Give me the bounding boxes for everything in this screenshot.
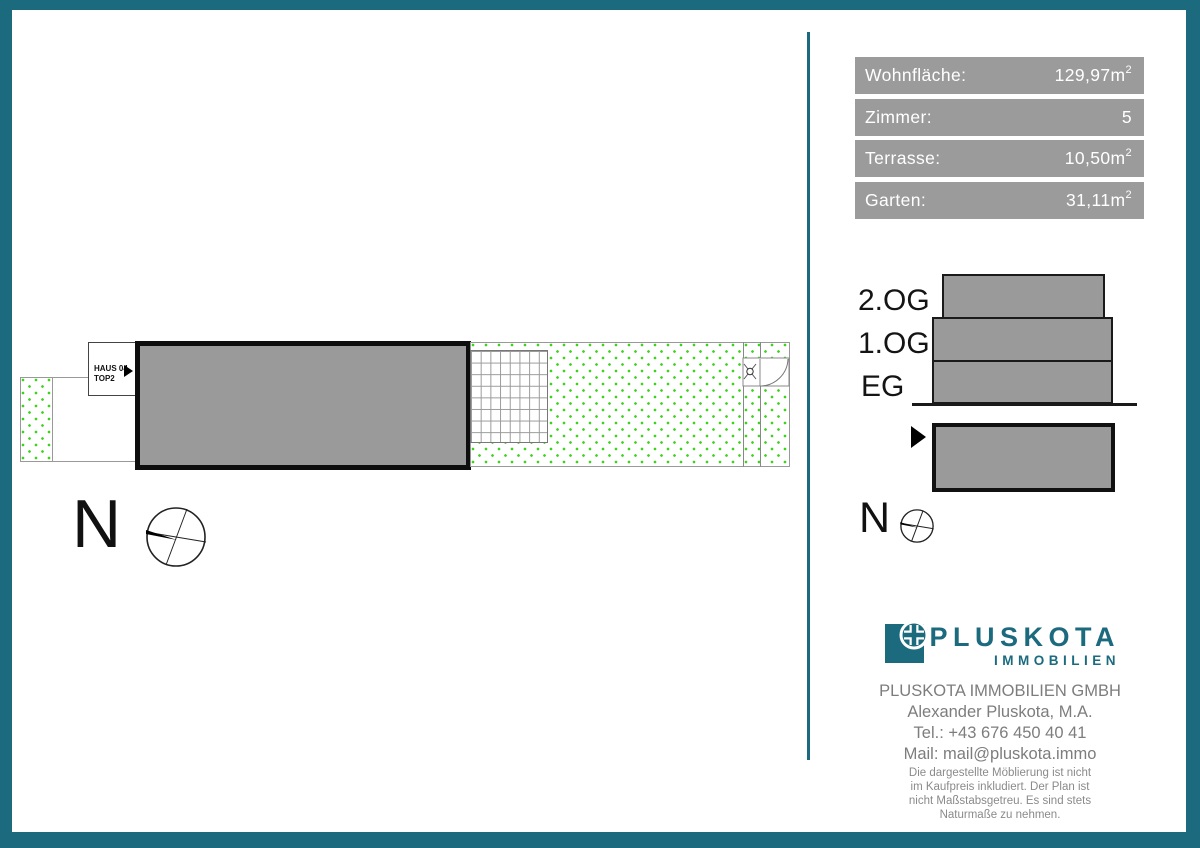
stat-value: 10,50m2 [1065, 148, 1132, 169]
frame-top [0, 0, 1200, 10]
contact-block: PLUSKOTA IMMOBILIEN GMBH Alexander Plusk… [840, 681, 1160, 765]
contact-person: Alexander Pluskota, M.A. [840, 702, 1160, 723]
stat-label: Zimmer: [865, 107, 932, 128]
arrow-right-icon [911, 426, 926, 448]
floor-label-2og: 2.OG [858, 286, 930, 316]
disclaimer-line: Die dargestellte Möblierung ist nicht [840, 766, 1160, 780]
floor-plan-page: HAUS 04 TOP2 N Wohnfläche: 129,97m2 Zimm… [0, 0, 1200, 848]
north-letter-small: N [859, 497, 890, 540]
contact-mail: Mail: mail@pluskota.immo [840, 744, 1160, 765]
terrace-grid [470, 350, 548, 443]
elevation-ground-line [912, 403, 1137, 406]
north-letter: N [72, 490, 121, 558]
highlighted-unit-box [932, 423, 1115, 492]
north-compass-icon-small [897, 506, 937, 546]
elevation-floor-eg [932, 360, 1113, 404]
building-footprint [135, 341, 471, 470]
disclaimer-line: Naturmaße zu nehmen. [840, 808, 1160, 822]
stat-row-terrasse: Terrasse: 10,50m2 [855, 140, 1144, 177]
stat-value: 31,11m2 [1066, 190, 1132, 211]
plus-magnifier-icon [885, 619, 931, 665]
stat-label: Garten: [865, 190, 926, 211]
haus-top-label: HAUS 04 TOP2 [88, 342, 136, 396]
arrow-right-icon [124, 365, 133, 377]
disclaimer-block: Die dargestellte Möblierung ist nicht im… [840, 766, 1160, 822]
frame-right [1186, 0, 1200, 848]
stat-row-garten: Garten: 31,11m2 [855, 182, 1144, 219]
vertical-divider [807, 32, 810, 760]
plot-line-top [53, 377, 88, 378]
frame-bottom [0, 832, 1200, 848]
north-compass-icon [140, 501, 212, 573]
disclaimer-line: nicht Maßstabsgetreu. Es sind stets [840, 794, 1160, 808]
contact-phone: Tel.: +43 676 450 40 41 [840, 723, 1160, 744]
plot-line-bottom [53, 461, 135, 462]
elevation-floor-1og [932, 317, 1113, 362]
brand-name: PLUSKOTA [930, 622, 1121, 653]
stat-row-wohnflaeche: Wohnfläche: 129,97m2 [855, 57, 1144, 94]
stat-value: 129,97m2 [1055, 65, 1132, 86]
frame-left [0, 0, 12, 848]
floor-label-eg: EG [861, 372, 904, 402]
stat-row-zimmer: Zimmer: 5 [855, 99, 1144, 136]
disclaimer-line: im Kaufpreis inkludiert. Der Plan ist [840, 780, 1160, 794]
stat-value: 5 [1122, 107, 1132, 128]
left-garden-strip [20, 377, 53, 462]
elevation-floor-2og [942, 274, 1105, 319]
brand-subtitle: IMMOBILIEN [994, 653, 1120, 668]
door-swing-icon [733, 350, 793, 392]
stat-label: Wohnfläche: [865, 65, 966, 86]
contact-company: PLUSKOTA IMMOBILIEN GMBH [840, 681, 1160, 702]
floor-label-1og: 1.OG [858, 329, 930, 359]
stat-label: Terrasse: [865, 148, 941, 169]
